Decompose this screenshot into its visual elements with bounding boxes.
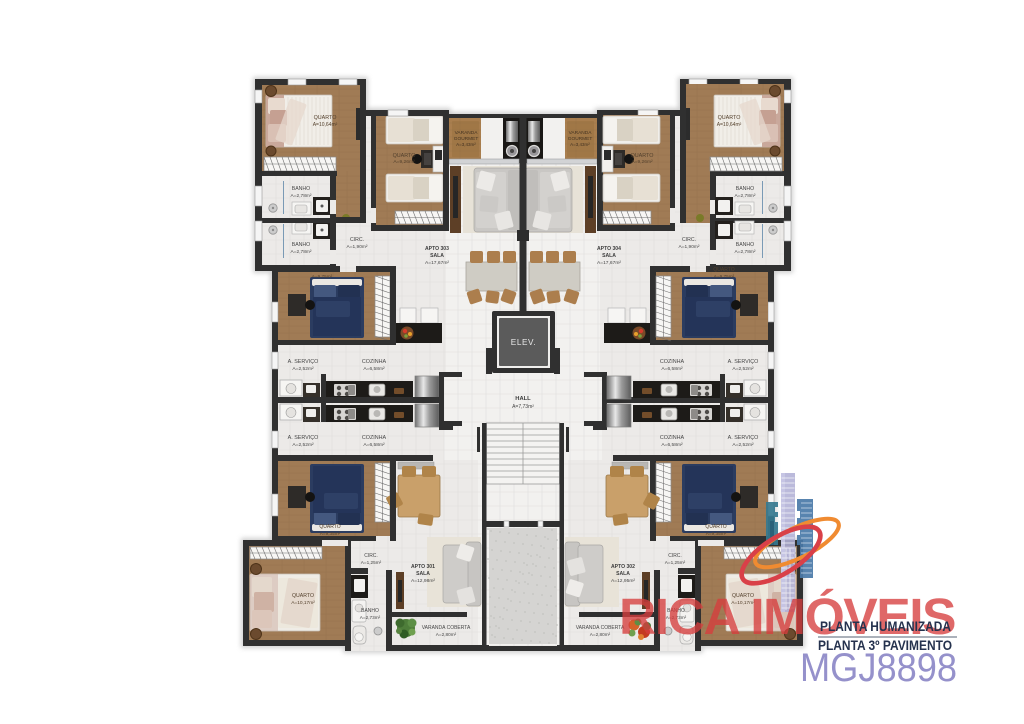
svg-text:A=2,78m²: A=2,78m² (291, 249, 312, 255)
svg-text:MGJ8898: MGJ8898 (800, 646, 957, 690)
svg-text:A. SERVIÇO: A. SERVIÇO (288, 435, 319, 441)
svg-text:A=9,26m²: A=9,26m² (393, 159, 415, 165)
svg-text:A=2,78m²: A=2,78m² (291, 193, 312, 199)
svg-text:A=1,90m²: A=1,90m² (347, 244, 368, 250)
svg-text:A=7,73m²: A=7,73m² (512, 404, 534, 410)
svg-text:CIRC.: CIRC. (668, 553, 682, 559)
svg-text:CIRC.: CIRC. (364, 553, 378, 559)
svg-text:QUARTO: QUARTO (292, 593, 314, 599)
svg-text:CIRC.: CIRC. (682, 237, 696, 243)
svg-text:A=3,43m²: A=3,43m² (570, 142, 590, 147)
svg-text:COZINHA: COZINHA (362, 359, 387, 365)
svg-text:VARANDA: VARANDA (455, 130, 479, 136)
svg-text:BANHO: BANHO (736, 186, 754, 192)
svg-text:A=6,58m²: A=6,58m² (363, 442, 385, 448)
svg-text:BANHO: BANHO (736, 242, 754, 248)
svg-text:APTO 301: APTO 301 (411, 564, 435, 570)
svg-text:QUARTO: QUARTO (718, 115, 741, 121)
svg-text:A=2,78m²: A=2,78m² (735, 249, 756, 255)
svg-text:A=10,64m²: A=10,64m² (717, 122, 742, 128)
svg-text:QUARTO: QUARTO (631, 153, 654, 159)
svg-text:SALA: SALA (602, 253, 616, 259)
svg-text:A=2,52m²: A=2,52m² (732, 442, 754, 448)
svg-text:VARANDA COBERTA: VARANDA COBERTA (422, 625, 471, 631)
svg-text:A=2,80m²: A=2,80m² (590, 632, 611, 637)
svg-text:A=17,67m²: A=17,67m² (597, 260, 621, 266)
svg-text:A=10,17m²: A=10,17m² (291, 600, 315, 606)
svg-text:A=9,26m²: A=9,26m² (631, 159, 653, 165)
svg-text:APTO 304: APTO 304 (597, 246, 621, 252)
svg-text:APTO 303: APTO 303 (425, 246, 449, 252)
svg-text:ELEV.: ELEV. (511, 338, 536, 347)
svg-text:A=2,52m²: A=2,52m² (292, 442, 314, 448)
svg-text:QUARTO: QUARTO (705, 524, 726, 530)
svg-text:SALA: SALA (416, 571, 430, 577)
svg-text:A=2,73m²: A=2,73m² (360, 615, 381, 620)
svg-text:A=17,67m²: A=17,67m² (425, 260, 449, 266)
svg-text:QUARTO: QUARTO (314, 115, 337, 121)
svg-text:A=1,25m²: A=1,25m² (665, 560, 686, 565)
svg-text:QUARTO: QUARTO (713, 267, 734, 273)
svg-text:A=2,52m²: A=2,52m² (732, 366, 754, 372)
svg-text:A=6,58m²: A=6,58m² (661, 366, 683, 372)
svg-text:COZINHA: COZINHA (660, 435, 685, 441)
svg-text:COZINHA: COZINHA (362, 435, 387, 441)
svg-text:A=12,98m²: A=12,98m² (411, 578, 435, 584)
svg-text:HALL: HALL (515, 396, 531, 402)
svg-text:APTO 302: APTO 302 (611, 564, 635, 570)
svg-text:PLANTA HUMANIZADA: PLANTA HUMANIZADA (820, 619, 951, 634)
svg-text:A=12,95m²: A=12,95m² (611, 578, 635, 584)
svg-text:A=3,43m²: A=3,43m² (456, 142, 476, 147)
svg-text:QUARTO: QUARTO (393, 153, 416, 159)
svg-text:VARANDA: VARANDA (569, 130, 593, 136)
svg-text:QUARTO: QUARTO (319, 524, 340, 530)
svg-text:SALA: SALA (430, 253, 444, 259)
svg-text:BANHO: BANHO (292, 186, 310, 192)
svg-text:A=6,58m²: A=6,58m² (363, 366, 385, 372)
svg-text:A=10,64m²: A=10,64m² (313, 122, 338, 128)
svg-text:BANHO: BANHO (361, 608, 379, 614)
svg-text:A=9,75m²: A=9,75m² (312, 274, 333, 279)
svg-text:A=6,58m²: A=6,58m² (661, 442, 683, 448)
svg-text:A=9,35m²: A=9,35m² (706, 531, 727, 536)
svg-text:A. SERVIÇO: A. SERVIÇO (728, 435, 759, 441)
svg-text:A=2,78m²: A=2,78m² (735, 193, 756, 199)
svg-text:A=1,90m²: A=1,90m² (679, 244, 700, 250)
svg-text:SALA: SALA (616, 571, 630, 577)
svg-text:CIRC.: CIRC. (350, 237, 364, 243)
svg-text:VARANDA COBERTA: VARANDA COBERTA (576, 625, 625, 631)
svg-text:COZINHA: COZINHA (660, 359, 685, 365)
svg-text:A=2,80m²: A=2,80m² (436, 632, 457, 637)
svg-text:A=1,25m²: A=1,25m² (361, 560, 382, 565)
svg-text:A=9,75m²: A=9,75m² (714, 274, 735, 279)
svg-text:A=2,52m²: A=2,52m² (292, 366, 314, 372)
svg-text:A. SERVIÇO: A. SERVIÇO (288, 359, 319, 365)
svg-text:A=9,35m²: A=9,35m² (320, 531, 341, 536)
svg-text:BANHO: BANHO (292, 242, 310, 248)
svg-text:A. SERVIÇO: A. SERVIÇO (728, 359, 759, 365)
